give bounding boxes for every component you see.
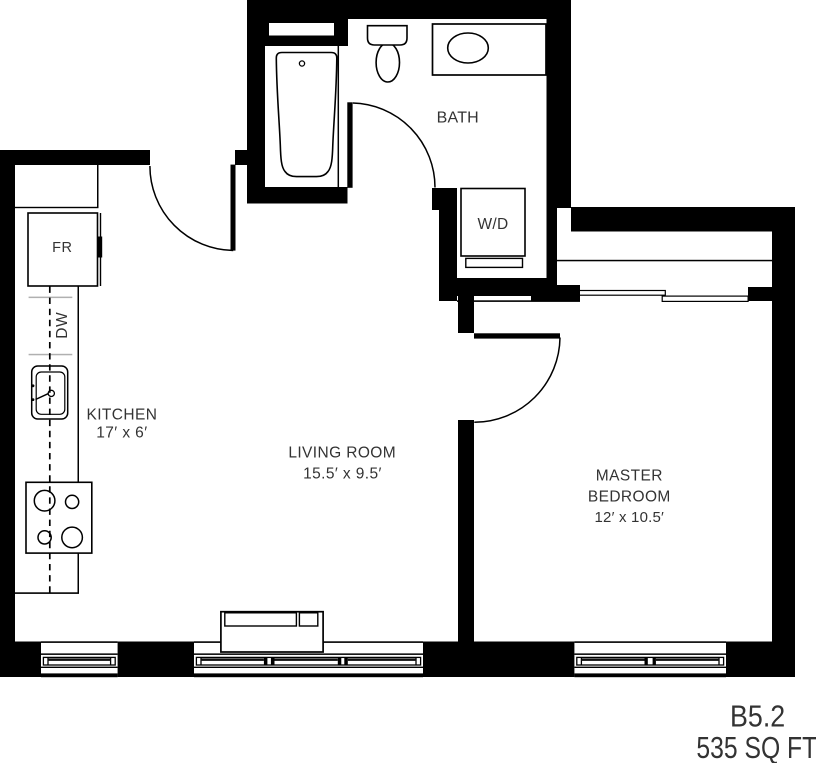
svg-text:DW: DW [54, 312, 71, 339]
svg-text:12′ x 10.5′: 12′ x 10.5′ [595, 509, 665, 526]
svg-text:15.5′ x 9.5′: 15.5′ x 9.5′ [303, 466, 382, 483]
svg-text:FR: FR [52, 240, 72, 256]
svg-text:17′ x 6′: 17′ x 6′ [96, 425, 147, 442]
svg-text:BATH: BATH [437, 109, 479, 126]
svg-text:LIVING ROOM: LIVING ROOM [288, 445, 396, 462]
svg-text:535 SQ FT: 535 SQ FT [696, 731, 816, 763]
svg-text:KITCHEN: KITCHEN [86, 407, 157, 424]
svg-text:MASTER: MASTER [596, 468, 663, 485]
svg-text:W/D: W/D [477, 216, 508, 233]
svg-text:B5.2: B5.2 [730, 700, 785, 734]
svg-text:BEDROOM: BEDROOM [588, 489, 671, 506]
